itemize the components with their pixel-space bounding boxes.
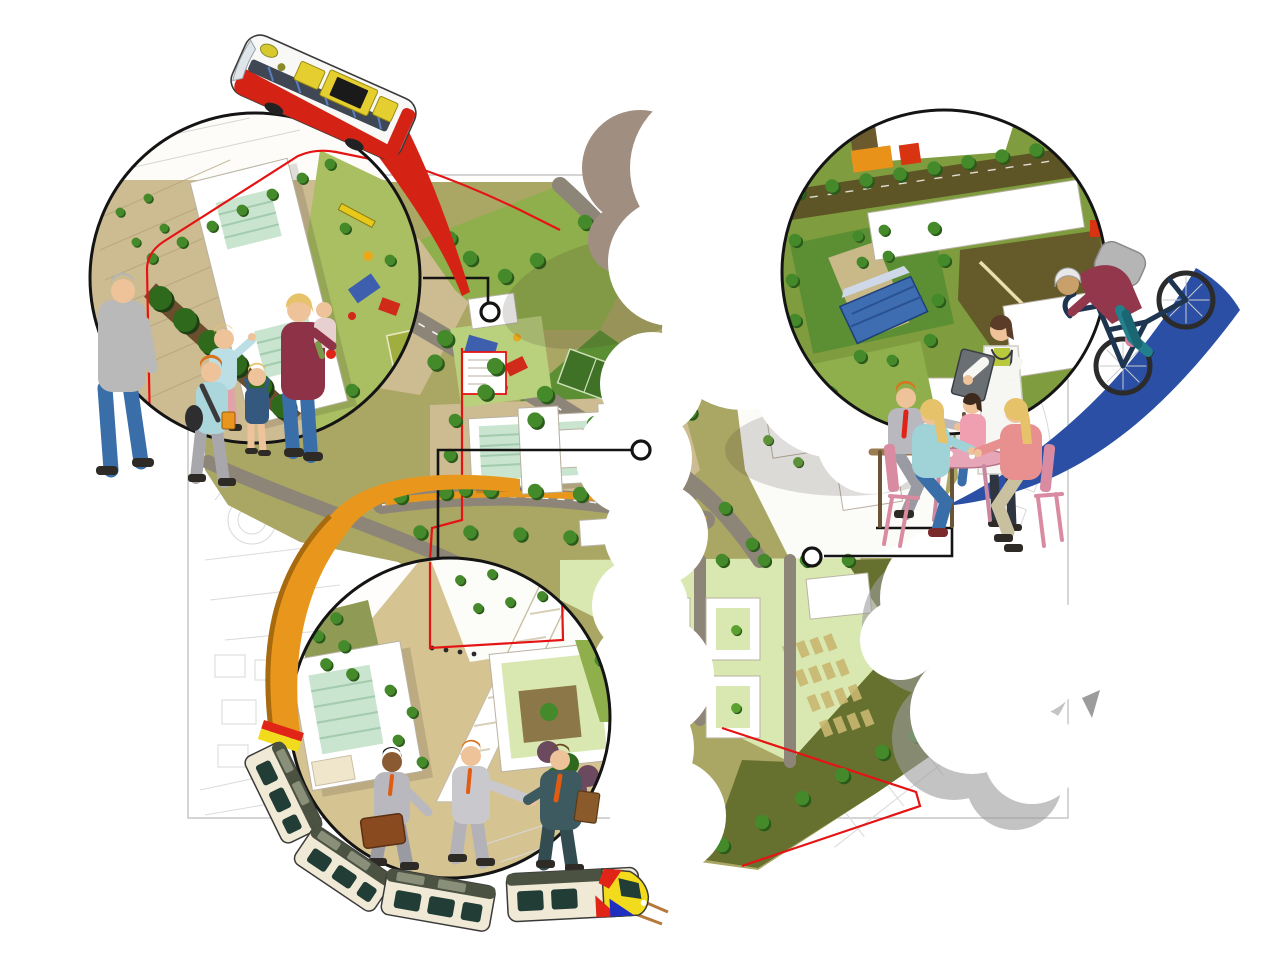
leader-marker-playground bbox=[481, 303, 499, 321]
tram-car-mid2 bbox=[380, 868, 496, 932]
tram-car-front bbox=[506, 867, 649, 922]
callout3-building bbox=[290, 640, 433, 799]
leader-marker-business bbox=[632, 441, 650, 459]
illustration-canvas bbox=[0, 0, 1280, 960]
masterplan-illustration bbox=[0, 0, 1280, 960]
leader-marker-health bbox=[803, 548, 821, 566]
